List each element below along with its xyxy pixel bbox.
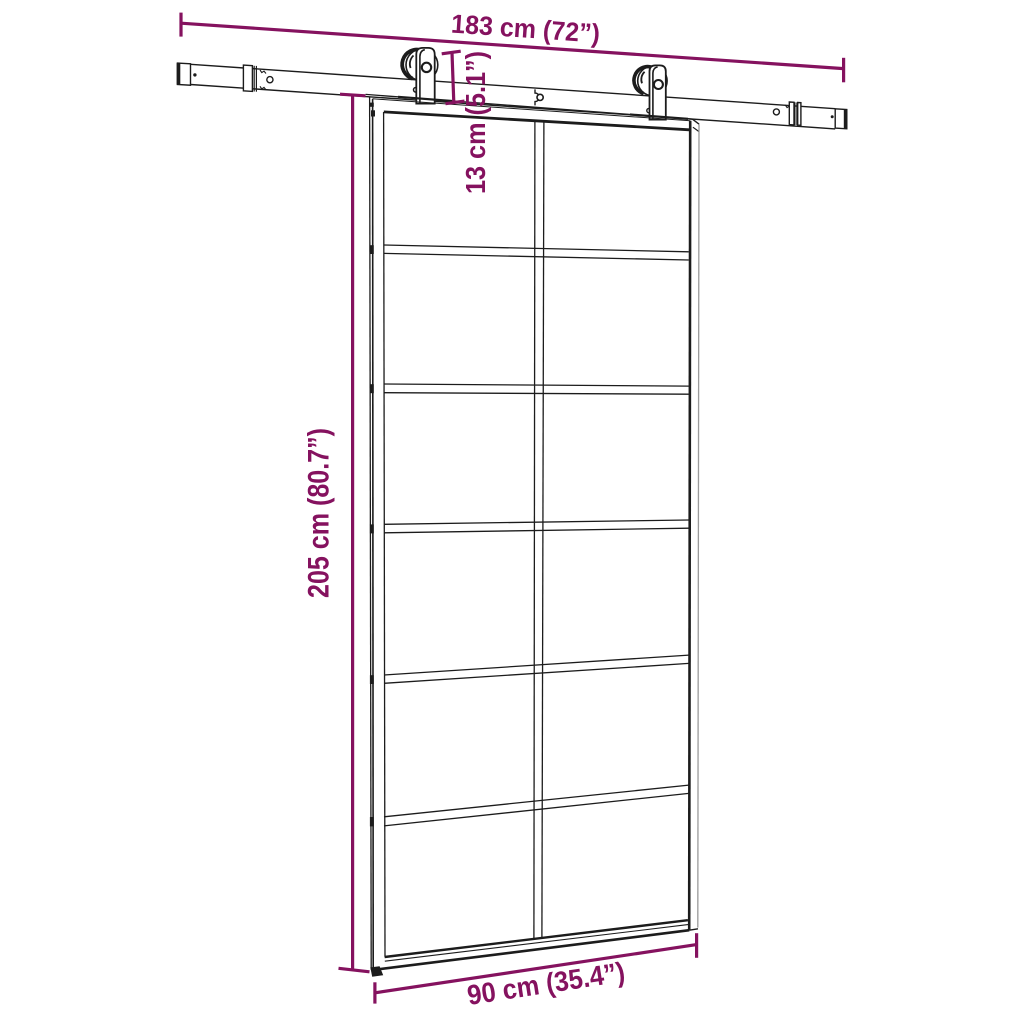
svg-text:13 cm (5.1”): 13 cm (5.1”) bbox=[460, 51, 491, 194]
svg-text:205 cm (80.7”): 205 cm (80.7”) bbox=[303, 428, 336, 598]
